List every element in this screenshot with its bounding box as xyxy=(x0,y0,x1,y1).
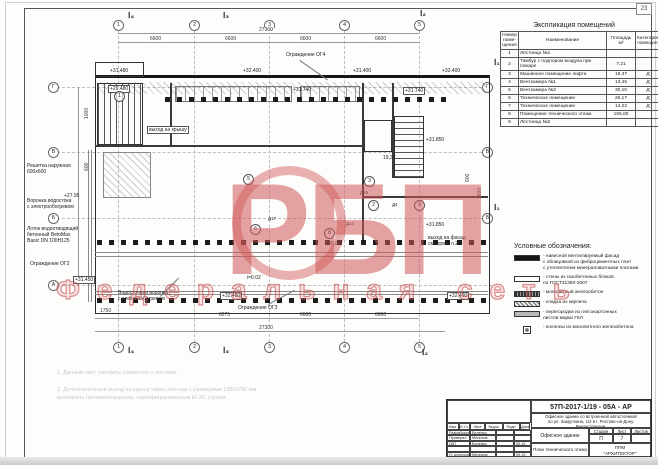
company-name: ППМ "АРХИТЕКТОР" xyxy=(589,443,651,457)
elevation-mark: +31.400 xyxy=(353,68,371,74)
room-category-cell: Д xyxy=(636,79,658,87)
axis-bubble: 1 xyxy=(113,342,124,353)
axis-bubble: В xyxy=(48,147,59,158)
room-category-cell xyxy=(636,58,658,71)
dim-label: 6600 xyxy=(149,36,162,42)
sheet-notes: 1. Данный лист смотреть совместно с лист… xyxy=(57,361,256,411)
axis-bubble: Г xyxy=(48,82,59,93)
dim-label: 1000 xyxy=(84,107,90,120)
legend-item: - колонны из монолитного железобетона xyxy=(514,325,650,334)
elevation-mark: +31.850 xyxy=(426,137,444,143)
annotation-grille: Решетка наружная 600х600 xyxy=(27,163,71,175)
titleblock-header-cell: Лист xyxy=(470,423,485,430)
section-mark: Ⅰ₃ xyxy=(223,11,229,20)
legend-symbol-icon xyxy=(523,326,531,334)
explication-table: Экспликация помещений Номер поме-щения Н… xyxy=(500,22,648,127)
explication-row: 6 Техническое помещение 26,17 Д xyxy=(501,95,658,103)
amendments-area xyxy=(447,400,531,423)
col-header-number: Номер поме-щения xyxy=(501,32,519,50)
legend-symbol-icon xyxy=(514,311,540,317)
explication-row: 8 Помещение технического этажа 155,00 xyxy=(501,111,658,119)
document-number: 57П-2017-1/19 - 05А - АР xyxy=(531,400,651,413)
legend-item-label: - колонны из монолитного железобетона xyxy=(543,325,634,331)
dim-label: 600 xyxy=(84,162,90,172)
room-category-cell: Д xyxy=(636,95,658,103)
section-mark: Ⅰ₂ xyxy=(420,9,426,18)
col-header-area: Площадь м² xyxy=(607,32,636,50)
room-name-cell: Тамбур с подпором воздуха при пожаре xyxy=(519,58,607,71)
explication-header-row: Номер поме-щения Наименование Площадь м²… xyxy=(501,32,658,50)
room-number-cell: 8 xyxy=(501,111,519,119)
axis-bubble: 5 xyxy=(414,20,425,31)
facade-column-row xyxy=(165,97,448,102)
explication-row: 3 Машинное помещение лифта 19,37 Д xyxy=(501,71,658,79)
dim-line xyxy=(95,331,445,332)
sheets-total-value xyxy=(631,434,651,443)
dim-label: 27300 xyxy=(258,325,274,331)
legend-item: - перегородки из гипсокартонных листов м… xyxy=(514,310,650,322)
title-block: Изм.К.Уч.Лист№док.Подп.Дата Разработал Б… xyxy=(446,399,652,458)
dim-line xyxy=(118,42,419,43)
titleblock-header-cell: К.Уч. xyxy=(459,423,470,430)
annotation-roof-exit: выход на крышу xyxy=(147,126,189,134)
section-mark: Ⅰ₁ xyxy=(494,203,500,212)
drawing-sheet: 23 1 2 3 4 5 1 2 3 4 5 Г В Б А Г В Б Ⅰ₄ … xyxy=(0,0,658,465)
room-number-cell: 9 xyxy=(501,119,519,127)
room-area-cell: 13,45 xyxy=(607,79,636,87)
legend-title: Условные обозначения: xyxy=(514,243,650,250)
dim-label: 6600 xyxy=(224,36,237,42)
axis-bubble: 1 xyxy=(113,20,124,31)
room-category-cell xyxy=(636,119,658,127)
object-name: Офисное здание xyxy=(531,428,589,443)
dim-line xyxy=(78,87,79,285)
room-number-cell: 4 xyxy=(501,79,519,87)
titleblock-header-row: Изм.К.Уч.Лист№док.Подп.Дата xyxy=(447,423,531,430)
room-number-cell: 5 xyxy=(501,87,519,95)
sheet-corner-number: 23 xyxy=(636,3,652,15)
axis-bubble: 3 xyxy=(264,342,275,353)
axis-bubble: 4 xyxy=(339,20,350,31)
room-area-cell: 26,17 xyxy=(607,95,636,103)
scan-edge-bottom xyxy=(0,457,658,465)
section-mark: Ⅰ₄ xyxy=(128,11,134,20)
room-name-cell: Техническое помещение xyxy=(519,95,607,103)
dim-line xyxy=(118,33,419,34)
explication-row: 5 Венткамера №2 30,10 Д xyxy=(501,87,658,95)
room-number-cell: 2 xyxy=(501,58,519,71)
explication-row: 2 Тамбур с подпором воздуха при пожаре 7… xyxy=(501,58,658,71)
room-area-cell xyxy=(607,50,636,58)
room-category-cell: Д xyxy=(636,103,658,111)
axis-bubble: 2 xyxy=(189,342,200,353)
note-line-2: 2. Дополнительный выход на крышу через л… xyxy=(57,386,256,403)
elevation-mark: +31.480 xyxy=(110,68,128,74)
section-mark: Ⅰ₂ xyxy=(422,348,428,357)
sheet-title: План технического этажа xyxy=(531,443,589,457)
axis-bubble: 4 xyxy=(339,342,350,353)
watermark-subtitle: Федеральная сеть xyxy=(56,274,587,306)
room-name-cell: Машинное помещение лифта xyxy=(519,71,607,79)
explication-row: 9 Лестница №2 xyxy=(501,119,658,127)
room-category-cell: Д xyxy=(636,71,658,79)
room-area-cell xyxy=(607,119,636,127)
section-mark: Ⅰ₁ xyxy=(494,58,500,67)
titleblock-header-cell: Дата xyxy=(520,423,530,430)
elevator-shaft xyxy=(364,120,392,152)
interior-wall xyxy=(95,145,364,147)
annotation-tray: Лоток водоотводящий бетонный BetoMax Bas… xyxy=(27,226,78,244)
vent-chamber xyxy=(103,152,151,198)
room-number-cell: 7 xyxy=(501,103,519,111)
note-line-1: 1. Данный лист смотреть совместно с лист… xyxy=(57,369,256,377)
room-number-cell: 6 xyxy=(501,95,519,103)
room-name-cell: Техническое помещение xyxy=(519,103,607,111)
room-name-cell: Помещение технического этажа xyxy=(519,111,607,119)
room-tag: 1 xyxy=(114,91,125,102)
legend-symbol-icon xyxy=(514,255,540,261)
col-header-name: Наименование xyxy=(519,32,607,50)
project-description: Офисное здание со встроенной автостоянко… xyxy=(531,413,651,428)
annotation-og4: Ограждение ОГ4 xyxy=(286,52,325,58)
elevation-mark: +31.740 xyxy=(403,87,425,95)
room-name-cell: Лестница №1 xyxy=(519,50,607,58)
titleblock-header-cell: Изм. xyxy=(447,423,459,430)
titleblock-header-cell: №док. xyxy=(485,423,503,430)
room-name-cell: Лестница №2 xyxy=(519,119,607,127)
room-category-cell xyxy=(636,50,658,58)
annotation-drain-funnel: Воронка водостока с электрообогревом xyxy=(27,198,74,210)
room-number-cell: 3 xyxy=(501,71,519,79)
titleblock-header-cell: Подп. xyxy=(503,423,520,430)
room-name-cell: Венткамера №1 xyxy=(519,79,607,87)
sheet-number-value: 7 xyxy=(613,434,631,443)
legend-item: - навесной вентилируемый фасад с облицов… xyxy=(514,254,650,272)
section-mark: Ⅰ₃ xyxy=(223,346,229,355)
dim-label: 6600 xyxy=(299,36,312,42)
room-number-cell: 1 xyxy=(501,50,519,58)
stage-value: П xyxy=(589,434,613,443)
annotation-og2: Ограждение ОГ2 xyxy=(30,261,69,267)
watermark-ring xyxy=(232,166,346,280)
dim-line xyxy=(95,318,419,319)
room-category-cell: Д xyxy=(636,87,658,95)
signature-rows: Разработал Беленко Проверил Мелихов ГАП … xyxy=(447,430,531,457)
explication-title: Экспликация помещений xyxy=(500,22,648,29)
section-mark: Ⅰ₄ xyxy=(128,346,134,355)
explication-row: 4 Венткамера №1 13,45 Д xyxy=(501,79,658,87)
dim-label: 27300 xyxy=(258,27,274,33)
room-area-cell: 30,10 xyxy=(607,87,636,95)
legend-item-label: - перегородки из гипсокартонных листов м… xyxy=(543,310,617,322)
elevation-mark: +31.740 xyxy=(293,87,311,93)
explication-row: 1 Лестница №1 xyxy=(501,50,658,58)
room-area-cell: 155,00 xyxy=(607,111,636,119)
col-header-category: Категория помещен. xyxy=(636,32,658,50)
legend-item-label: - навесной вентилируемый фасад с облицов… xyxy=(543,254,638,272)
room-area-cell: 7,21 xyxy=(607,58,636,71)
interior-wall xyxy=(170,83,172,145)
room-category-cell xyxy=(636,111,658,119)
room-area-cell: 19,37 xyxy=(607,71,636,79)
room-area-cell: 14,22 xyxy=(607,103,636,111)
elevation-mark: +32.400 xyxy=(243,68,261,74)
axis-bubble: 2 xyxy=(189,20,200,31)
elevation-mark: +32.400 xyxy=(442,68,460,74)
room-name-cell: Венткамера №2 xyxy=(519,87,607,95)
axis-bubble: Б xyxy=(48,213,59,224)
dim-label: 6600 xyxy=(374,36,387,42)
explication-row: 7 Техническое помещение 14,22 Д xyxy=(501,103,658,111)
